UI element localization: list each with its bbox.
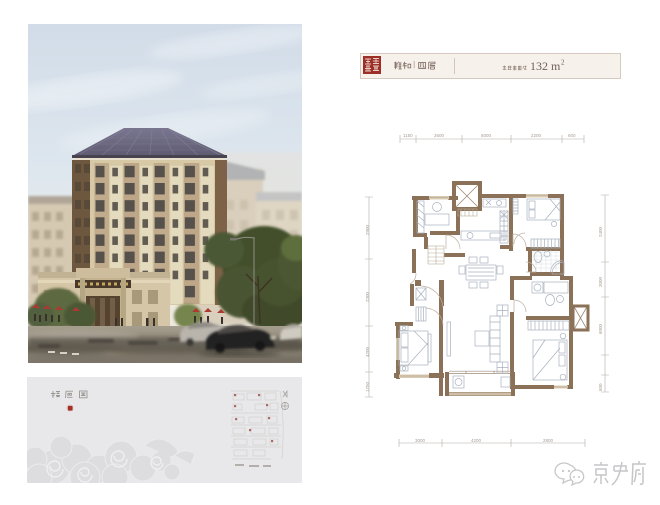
svg-text:3000: 3000 bbox=[598, 276, 603, 287]
svg-text:1750: 1750 bbox=[365, 381, 370, 392]
svg-text:132 m: 132 m bbox=[530, 59, 561, 73]
svg-text:600: 600 bbox=[598, 383, 603, 391]
svg-text:2: 2 bbox=[561, 59, 565, 67]
svg-text:2200: 2200 bbox=[531, 133, 542, 138]
svg-text:2900: 2900 bbox=[365, 224, 370, 235]
svg-text:1150: 1150 bbox=[403, 133, 413, 138]
svg-text:4200: 4200 bbox=[365, 346, 370, 357]
svg-text:4200: 4200 bbox=[471, 438, 482, 443]
svg-text:6000: 6000 bbox=[598, 323, 603, 334]
svg-text:600: 600 bbox=[568, 133, 576, 138]
svg-text:2400: 2400 bbox=[598, 226, 603, 237]
svg-text:5000: 5000 bbox=[481, 133, 492, 138]
svg-text:3000: 3000 bbox=[415, 438, 426, 443]
svg-text:2300: 2300 bbox=[365, 291, 370, 302]
svg-text:2600: 2600 bbox=[434, 133, 445, 138]
svg-text:2800: 2800 bbox=[543, 438, 554, 443]
